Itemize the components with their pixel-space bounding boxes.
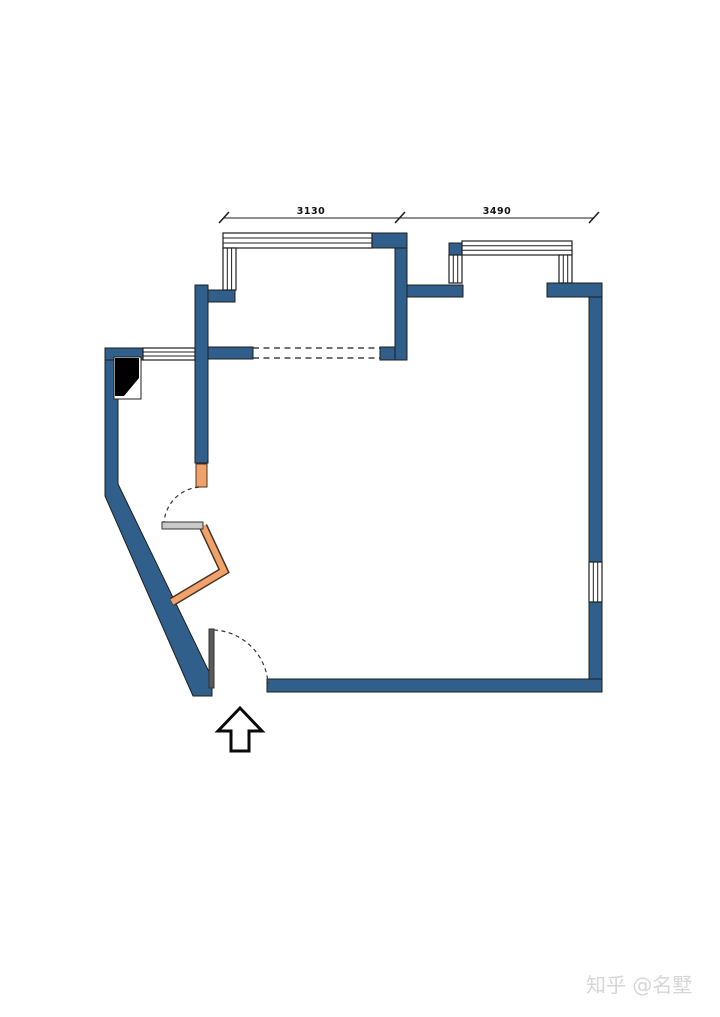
- right-wall-lower: [589, 601, 602, 692]
- right-bay-column-block: [449, 243, 462, 255]
- door-swing-arc: [164, 487, 202, 525]
- interior-door: [162, 487, 203, 529]
- balcony-right-wall: [395, 247, 407, 360]
- dashed-opening: [253, 348, 380, 358]
- structural-walls: [105, 233, 602, 696]
- right-wall-upper: [589, 297, 602, 563]
- dimension-label-right: 3490: [483, 206, 511, 217]
- floor-plan-drawing: 3130 3490: [0, 0, 720, 1017]
- entrance-arrow-icon: [218, 708, 262, 751]
- window-symbol: [462, 241, 572, 255]
- window-symbol: [589, 562, 602, 602]
- bottom-wall: [267, 679, 602, 692]
- shaft-symbol: [114, 357, 141, 399]
- top-middle-wall-stub: [407, 285, 463, 297]
- entrance-door-leaf: [209, 629, 214, 688]
- accent-walls: [172, 464, 224, 602]
- accent-wall-zigzag-outline: [172, 526, 224, 602]
- interior-wall: [195, 285, 208, 463]
- window-symbol: [143, 348, 195, 360]
- window-symbol: [449, 255, 462, 283]
- window-symbol: [223, 233, 372, 248]
- accent-wall-stub: [196, 464, 207, 487]
- watermark: 知乎 @名墅: [586, 973, 692, 997]
- dimension-annotation: 3130 3490: [219, 206, 599, 223]
- door-leaf: [162, 522, 203, 529]
- entrance-door: [209, 629, 268, 688]
- right-bay-bottom-wall: [547, 283, 602, 297]
- dimension-label-left: 3130: [297, 206, 325, 217]
- balcony-left-stub: [208, 290, 235, 302]
- door-swing-arc: [214, 630, 268, 684]
- balcony-window-corner-block: [372, 233, 407, 248]
- floor-plan-canvas: 3130 3490: [0, 0, 720, 1017]
- window-symbol: [559, 255, 572, 283]
- window-symbol: [223, 248, 236, 290]
- balcony-bottom-wall-left: [208, 347, 253, 359]
